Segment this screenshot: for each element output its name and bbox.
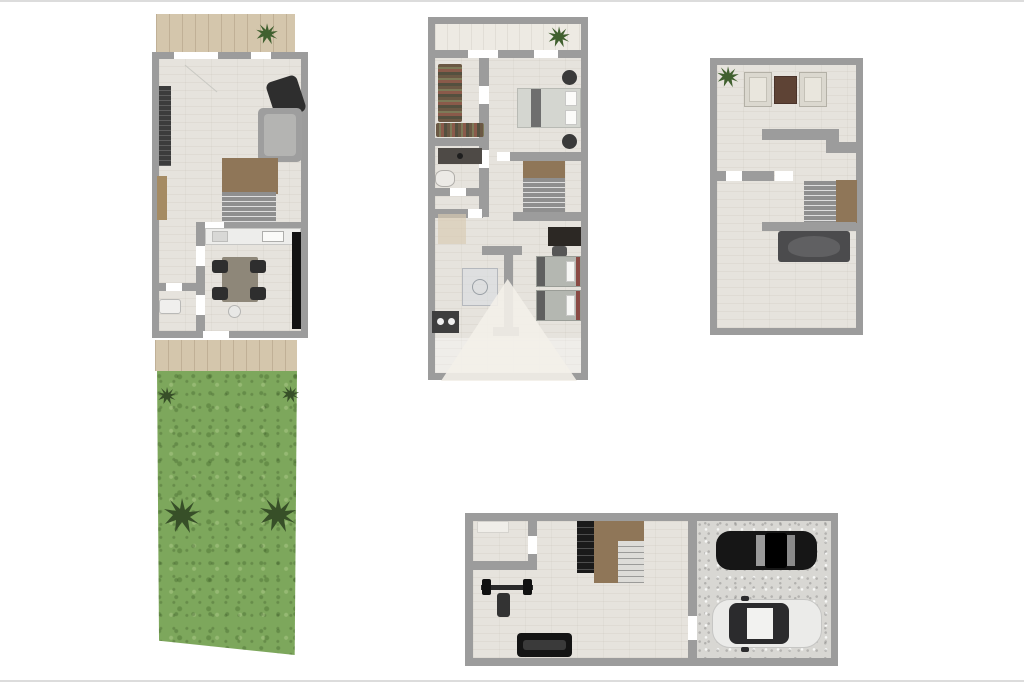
shrub-icon xyxy=(157,386,177,406)
cooktop xyxy=(212,231,228,242)
garden-plant-icon xyxy=(258,495,298,535)
weight-plate xyxy=(482,579,491,595)
storage-door-gap xyxy=(528,536,537,554)
single-bed xyxy=(536,256,581,287)
dining-chair xyxy=(250,287,266,300)
patio-strip xyxy=(155,340,297,371)
bed-frame xyxy=(537,257,545,286)
bathroom-sink xyxy=(432,311,459,333)
car-mirror xyxy=(741,596,749,601)
hallway-door-gap xyxy=(196,246,205,266)
staircase-steps xyxy=(804,181,838,223)
staircase-steps xyxy=(618,541,644,583)
dining-chair xyxy=(250,260,266,273)
lounge-chair xyxy=(799,72,827,107)
shower-wall-top xyxy=(482,246,522,255)
attic-wall xyxy=(762,129,832,140)
kitchen-sink xyxy=(262,231,284,242)
lounge-chair xyxy=(744,72,772,107)
clothes-rack xyxy=(438,64,462,122)
chair-cushion xyxy=(804,77,822,102)
wardrobe xyxy=(157,176,167,220)
sofa-cushion xyxy=(264,114,296,156)
window-gap xyxy=(251,52,271,59)
bed-runner xyxy=(531,89,541,127)
workout-bench xyxy=(517,633,572,657)
car-roof xyxy=(747,608,773,639)
entry-door-gap xyxy=(203,331,229,338)
car-rear-window xyxy=(787,535,795,566)
balcony-plant-icon xyxy=(546,25,572,49)
shower-drain xyxy=(472,279,488,295)
bench-pad xyxy=(523,640,566,650)
garage-door-gap xyxy=(688,616,697,640)
sink-bowl xyxy=(448,318,455,325)
balcony-window-gap xyxy=(534,50,558,58)
car-roof xyxy=(765,533,787,568)
nightstand xyxy=(562,70,577,85)
car-black xyxy=(716,531,817,570)
balcony-window-gap xyxy=(468,50,498,58)
attic-door-threshold xyxy=(775,171,793,181)
shower xyxy=(462,268,498,306)
bedroom-door-gap xyxy=(497,152,510,161)
garden-plant-icon xyxy=(162,496,202,536)
tv-panel xyxy=(292,232,301,329)
vanity xyxy=(438,148,482,164)
staircase-steps xyxy=(523,178,565,213)
stair-wall xyxy=(513,212,581,221)
bed-frame xyxy=(537,291,545,320)
pillow xyxy=(566,261,575,282)
sheet-frame-bottom xyxy=(0,680,1024,682)
bathroom-door-gap xyxy=(450,188,466,196)
attic-wall xyxy=(710,171,774,181)
storage-wall-h xyxy=(465,561,537,570)
storage-table xyxy=(477,521,509,533)
hallway-door-gap xyxy=(196,295,205,315)
weight-plate xyxy=(523,579,532,595)
chair-cushion xyxy=(749,77,767,102)
storage-shelf xyxy=(577,521,594,573)
closet-wall-h xyxy=(435,138,487,146)
toilet xyxy=(435,170,455,187)
sideboard xyxy=(159,86,171,166)
bed-accent xyxy=(576,257,580,286)
sheet-frame-top xyxy=(0,0,1024,2)
nightstand xyxy=(562,134,577,149)
bedroom-wall xyxy=(510,152,588,161)
sofa xyxy=(258,108,302,162)
staircase-upper xyxy=(222,158,278,194)
attic-bed xyxy=(778,231,850,262)
storage-patch xyxy=(438,214,466,244)
attic-wall xyxy=(826,142,863,153)
terrace xyxy=(156,14,295,52)
pillow xyxy=(565,110,577,125)
corridor-door-gap xyxy=(468,209,482,218)
closet-door-gap xyxy=(479,86,489,104)
staircase-steps xyxy=(222,192,276,222)
single-bed xyxy=(536,290,581,321)
bed-accent xyxy=(576,291,580,320)
desk xyxy=(548,227,581,246)
car-mirror xyxy=(741,647,749,652)
wc-sink xyxy=(159,299,181,314)
duvet-fold xyxy=(788,236,840,257)
pillow xyxy=(565,91,577,106)
vanity-bowl xyxy=(457,153,463,159)
car-white xyxy=(712,599,822,648)
car-windshield xyxy=(756,535,765,566)
stair-wall xyxy=(762,222,856,231)
balcony-wall xyxy=(435,50,581,58)
dining-chair xyxy=(212,287,228,300)
sink-bowl xyxy=(437,318,444,325)
attic-door-gap xyxy=(726,171,742,181)
gym-bench xyxy=(497,593,510,617)
floorplan-sheet xyxy=(0,0,1024,683)
staircase-upper xyxy=(523,161,565,178)
pillow xyxy=(566,295,575,316)
terrace-plant-icon xyxy=(253,22,281,46)
shrub-icon xyxy=(281,385,300,404)
wc-door-gap xyxy=(166,283,182,291)
floor-lamp xyxy=(228,305,241,318)
clothes-rack xyxy=(436,123,484,137)
garage-partition-wall xyxy=(688,513,697,666)
attic-plant-icon xyxy=(715,65,741,89)
staircase-landing xyxy=(836,180,857,223)
dining-chair xyxy=(212,260,228,273)
double-bed xyxy=(517,88,581,128)
window-gap xyxy=(174,52,218,59)
coffee-table xyxy=(774,76,797,104)
